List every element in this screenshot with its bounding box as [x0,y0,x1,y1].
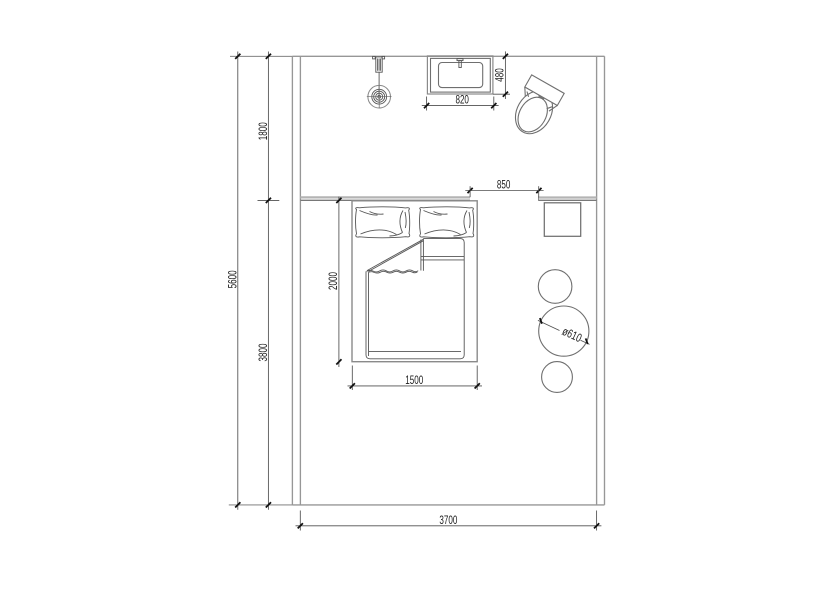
svg-text:820: 820 [455,92,469,106]
svg-text:480: 480 [493,68,507,82]
svg-text:2000: 2000 [326,272,340,290]
svg-text:1500: 1500 [405,373,423,387]
svg-text:1800: 1800 [256,122,270,140]
svg-text:850: 850 [497,177,511,191]
svg-text:3700: 3700 [439,513,457,527]
svg-text:5600: 5600 [226,270,240,288]
svg-text:3800: 3800 [256,343,270,361]
